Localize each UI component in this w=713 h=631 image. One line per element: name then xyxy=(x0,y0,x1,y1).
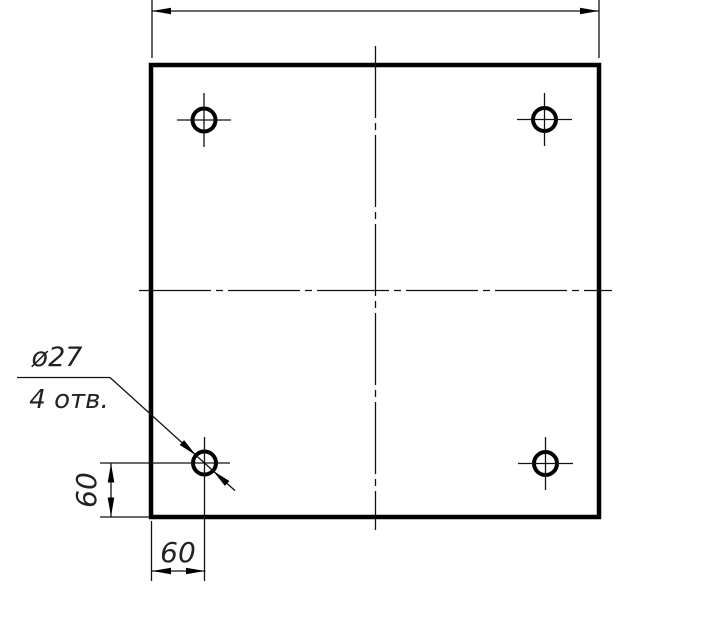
horizontal-offset-dimension: 60 xyxy=(152,521,206,581)
dimension-arrow-icon xyxy=(108,464,115,483)
callout-holes-count: 4 отв. xyxy=(29,385,108,415)
dimension-arrow-icon xyxy=(108,498,115,517)
horizontal-offset-value: 60 xyxy=(160,536,196,569)
dimension-arrow-icon xyxy=(580,8,599,15)
hole-bottom-right xyxy=(518,437,573,490)
vertical-offset-dimension: 60 xyxy=(70,463,150,517)
dimension-arrow-icon xyxy=(152,8,171,15)
plate-technical-drawing: 60 60 ø27 4 отв. xyxy=(0,0,713,631)
callout-diameter-value: ø27 xyxy=(31,342,83,373)
hole-top-left xyxy=(177,93,231,147)
drawing-canvas: 60 60 ø27 4 отв. xyxy=(0,0,713,631)
hole-callout: ø27 4 отв. xyxy=(17,342,235,491)
vertical-offset-value: 60 xyxy=(70,472,103,508)
hole-top-right xyxy=(517,93,572,146)
